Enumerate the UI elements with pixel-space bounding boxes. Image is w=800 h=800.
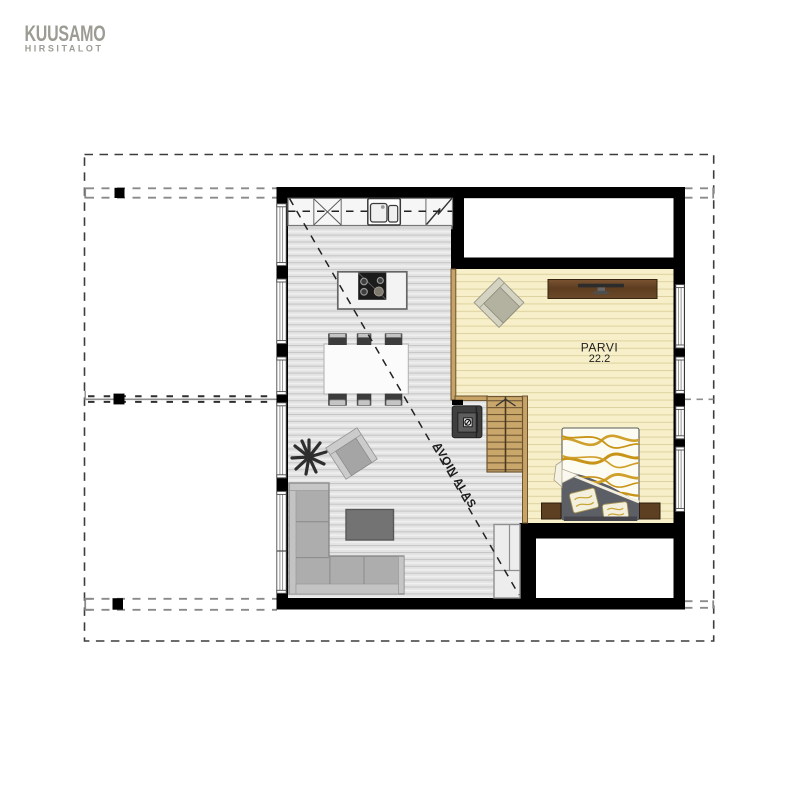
svg-text:HIRSITALOT: HIRSITALOT [25,44,104,54]
svg-text:22.2: 22.2 [589,353,610,365]
